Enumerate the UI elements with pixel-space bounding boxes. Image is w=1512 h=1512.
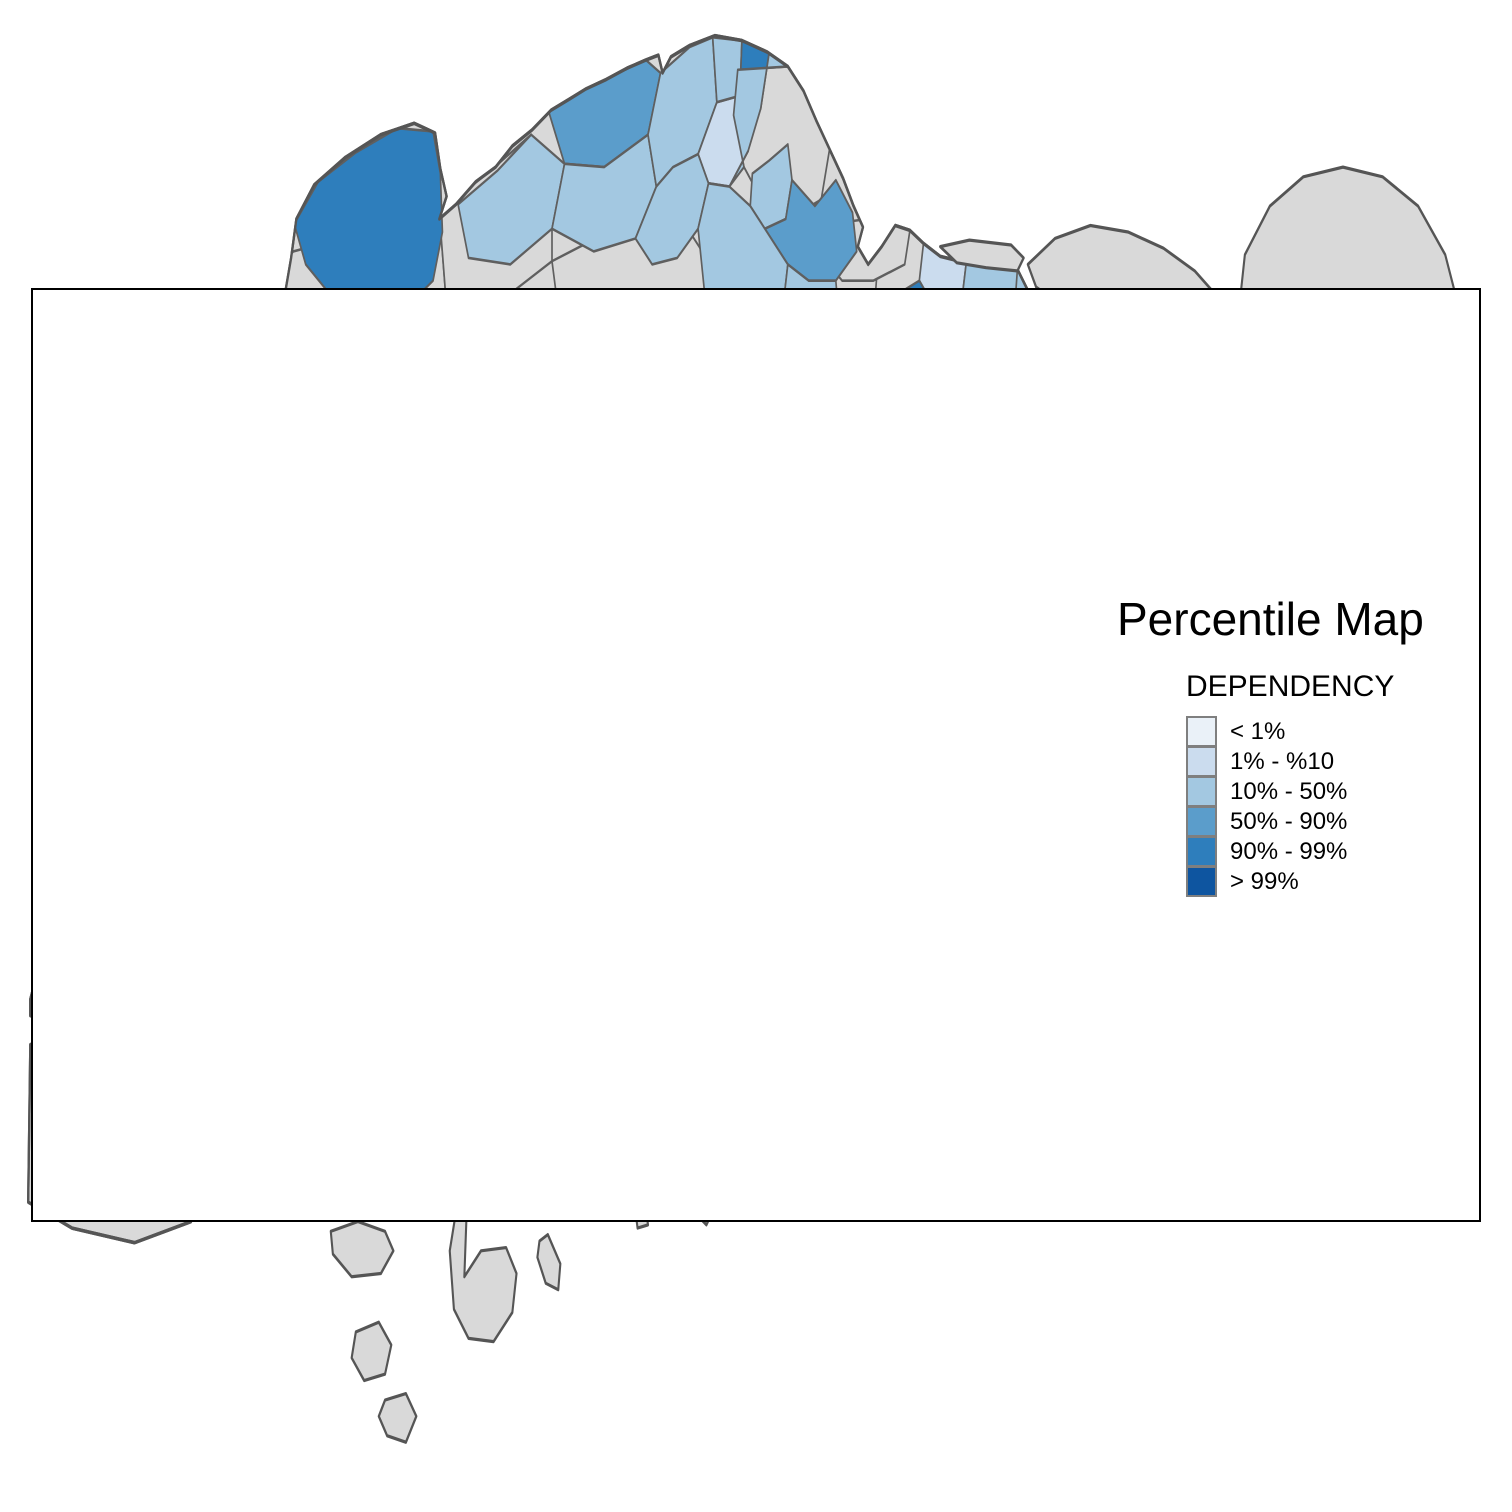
legend-swatch-c2 <box>1186 776 1217 807</box>
legend-label: 90% - 99% <box>1230 838 1347 866</box>
legend-title: DEPENDENCY <box>1186 670 1394 704</box>
legend: DEPENDENCY < 1%1% - %1010% - 50%50% - 90… <box>1186 670 1394 897</box>
legend-label: > 99% <box>1230 868 1299 896</box>
legend-swatch-c3 <box>1186 806 1217 837</box>
island <box>537 1235 560 1290</box>
plot-title: Percentile Map <box>1117 592 1424 646</box>
legend-swatch-c1 <box>1186 746 1217 777</box>
island <box>352 1322 392 1380</box>
legend-item: 50% - 90% <box>1186 807 1394 837</box>
legend-item: > 99% <box>1186 867 1394 897</box>
figure-canvas: Percentile Map DEPENDENCY < 1%1% - %1010… <box>0 0 1512 1512</box>
legend-label: < 1% <box>1230 718 1285 746</box>
island <box>379 1394 417 1443</box>
legend-swatch-c5 <box>1186 866 1217 897</box>
legend-item: < 1% <box>1186 717 1394 747</box>
island <box>331 1222 394 1277</box>
legend-item: 90% - 99% <box>1186 837 1394 867</box>
legend-swatch-c4 <box>1186 836 1217 867</box>
legend-label: 10% - 50% <box>1230 778 1347 806</box>
legend-label: 50% - 90% <box>1230 808 1347 836</box>
legend-swatch-c0 <box>1186 716 1217 747</box>
island <box>450 1212 517 1342</box>
legend-label: 1% - %10 <box>1230 748 1334 776</box>
legend-items: < 1%1% - %1010% - 50%50% - 90%90% - 99%>… <box>1186 717 1394 897</box>
legend-item: 1% - %10 <box>1186 747 1394 777</box>
legend-item: 10% - 50% <box>1186 777 1394 807</box>
